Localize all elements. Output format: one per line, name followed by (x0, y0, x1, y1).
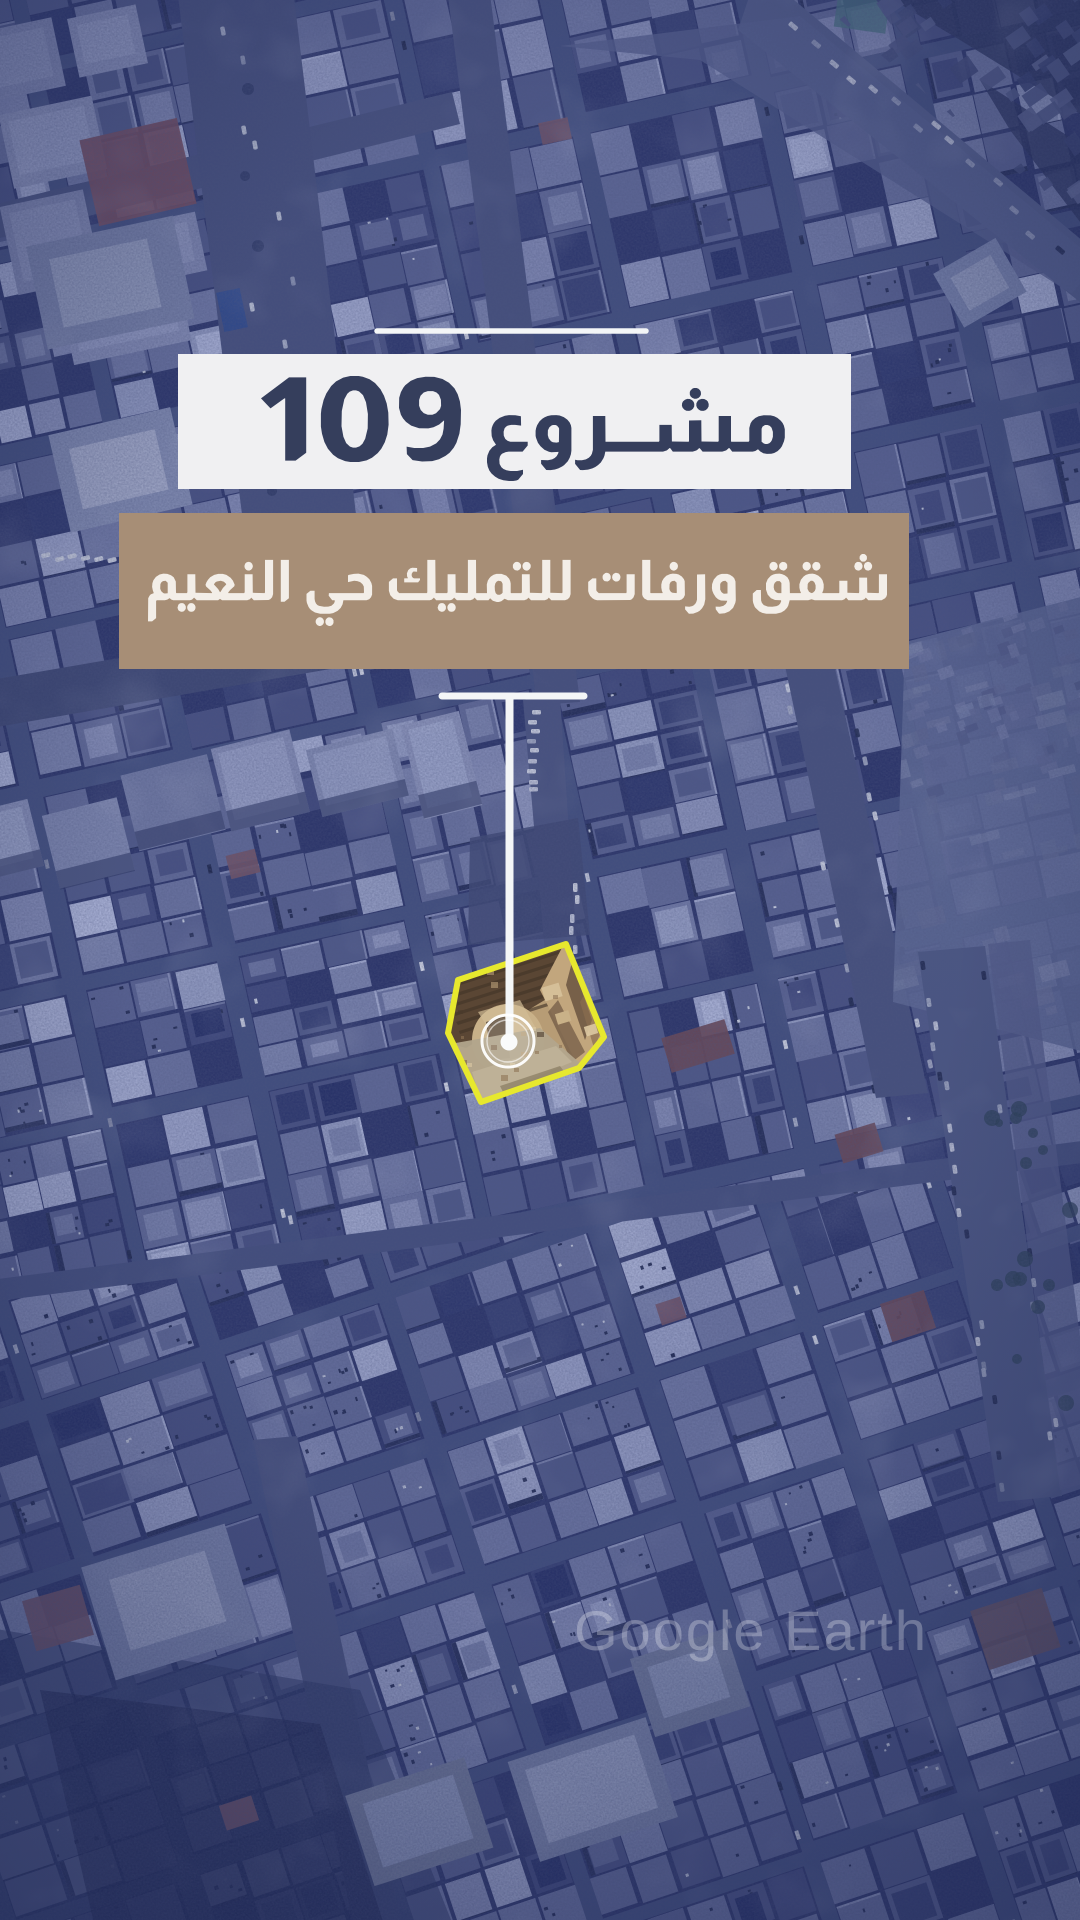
svg-text:Google Earth: Google Earth (574, 1599, 928, 1662)
